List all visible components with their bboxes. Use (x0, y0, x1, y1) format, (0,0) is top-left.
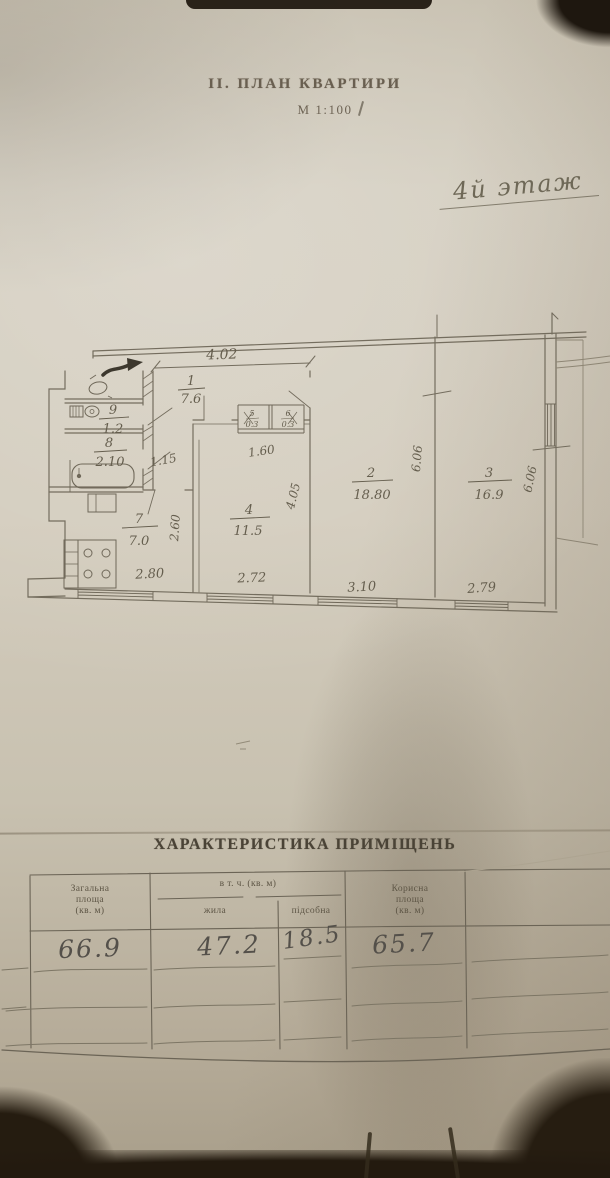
dim-kitchen-depth: 2.60 (167, 514, 183, 543)
svg-text:7.6: 7.6 (181, 392, 202, 407)
svg-text:5: 5 (249, 409, 254, 418)
svg-text:18.80: 18.80 (353, 488, 390, 503)
room-label-4: 4 11.5 (230, 503, 270, 539)
room-label-7: 7 7.0 (122, 512, 158, 549)
room-label-5: 5 0.3 (246, 409, 259, 429)
dimension-extension-lines (556, 340, 610, 545)
svg-text:0.3: 0.3 (282, 420, 295, 429)
floor-plan-drawing: 1 7.6 2 18.80 3 16.9 4 11.5 5 (0, 300, 610, 760)
table-row-lines (2, 955, 608, 1046)
background-top-right-corner (532, 0, 610, 50)
document-section-title: ІІ. ПЛАН КВАРТИРИ (0, 76, 610, 93)
background-top-edge (186, 0, 432, 9)
svg-text:8: 8 (105, 436, 113, 451)
svg-text:2.10: 2.10 (95, 455, 125, 470)
svg-text:1.2: 1.2 (103, 422, 124, 437)
header-total-area: Загальна площа (кв. м) (35, 884, 145, 917)
value-living-area: 47.2 (181, 929, 276, 963)
svg-text:11.5: 11.5 (234, 524, 263, 539)
dim-kitchen-width: 2.80 (134, 566, 165, 583)
svg-text:3: 3 (485, 466, 493, 481)
svg-text:7: 7 (135, 512, 144, 527)
scale-label: М 1:100 (20, 102, 610, 118)
toilet-icon (70, 406, 99, 417)
svg-text:6: 6 (285, 409, 290, 418)
room-label-2: 2 18.80 (352, 466, 393, 503)
dim-room3-depth: 6.06 (520, 464, 539, 493)
room-label-8: 8 2.10 (94, 436, 127, 470)
svg-text:7.0: 7.0 (129, 534, 150, 549)
dim-hall-width: 4.02 (205, 346, 238, 363)
heater-column-icon (88, 494, 116, 512)
header-including: в т. ч. (кв. м) (160, 879, 336, 890)
svg-text:0.3: 0.3 (246, 420, 259, 429)
value-useful-area: 65.7 (357, 927, 450, 961)
svg-text:4: 4 (244, 503, 253, 518)
dim-room4-depth: 4.05 (283, 481, 303, 511)
svg-text:1: 1 (187, 374, 195, 389)
entrance-arrow-icon (103, 358, 143, 375)
dim-room4-width: 2.72 (236, 571, 266, 587)
pantry-fixture-icon (88, 375, 112, 398)
dim-room3-width: 2.79 (466, 580, 497, 597)
svg-text:2: 2 (366, 466, 375, 481)
header-auxiliary-area: підсобна (280, 906, 342, 917)
header-living-area: жила (170, 906, 260, 917)
stray-pencil-mark (236, 741, 250, 749)
scale-correction-mark (355, 100, 367, 118)
header-useful-area: Корисна площа (кв. м) (360, 884, 460, 917)
room-label-6: 6 0.3 (281, 409, 294, 429)
stove-icon (64, 540, 116, 588)
dim-room2-width: 3.10 (347, 579, 377, 595)
svg-text:16.9: 16.9 (475, 488, 504, 503)
room-label-1: 1 7.6 (178, 374, 205, 407)
dim-room2-depth: 6.06 (409, 444, 425, 472)
room-label-9: 9 1.2 (99, 403, 129, 437)
value-total-area: 66.9 (38, 932, 143, 965)
background-bottom-edge (0, 1150, 610, 1178)
scanned-floor-plan-photo: ІІ. ПЛАН КВАРТИРИ М 1:100 4й этаж (0, 0, 610, 1178)
svg-text:9: 9 (109, 403, 117, 418)
dim-closet-width: 1.60 (247, 442, 276, 460)
room-label-3: 3 16.9 (468, 466, 512, 503)
